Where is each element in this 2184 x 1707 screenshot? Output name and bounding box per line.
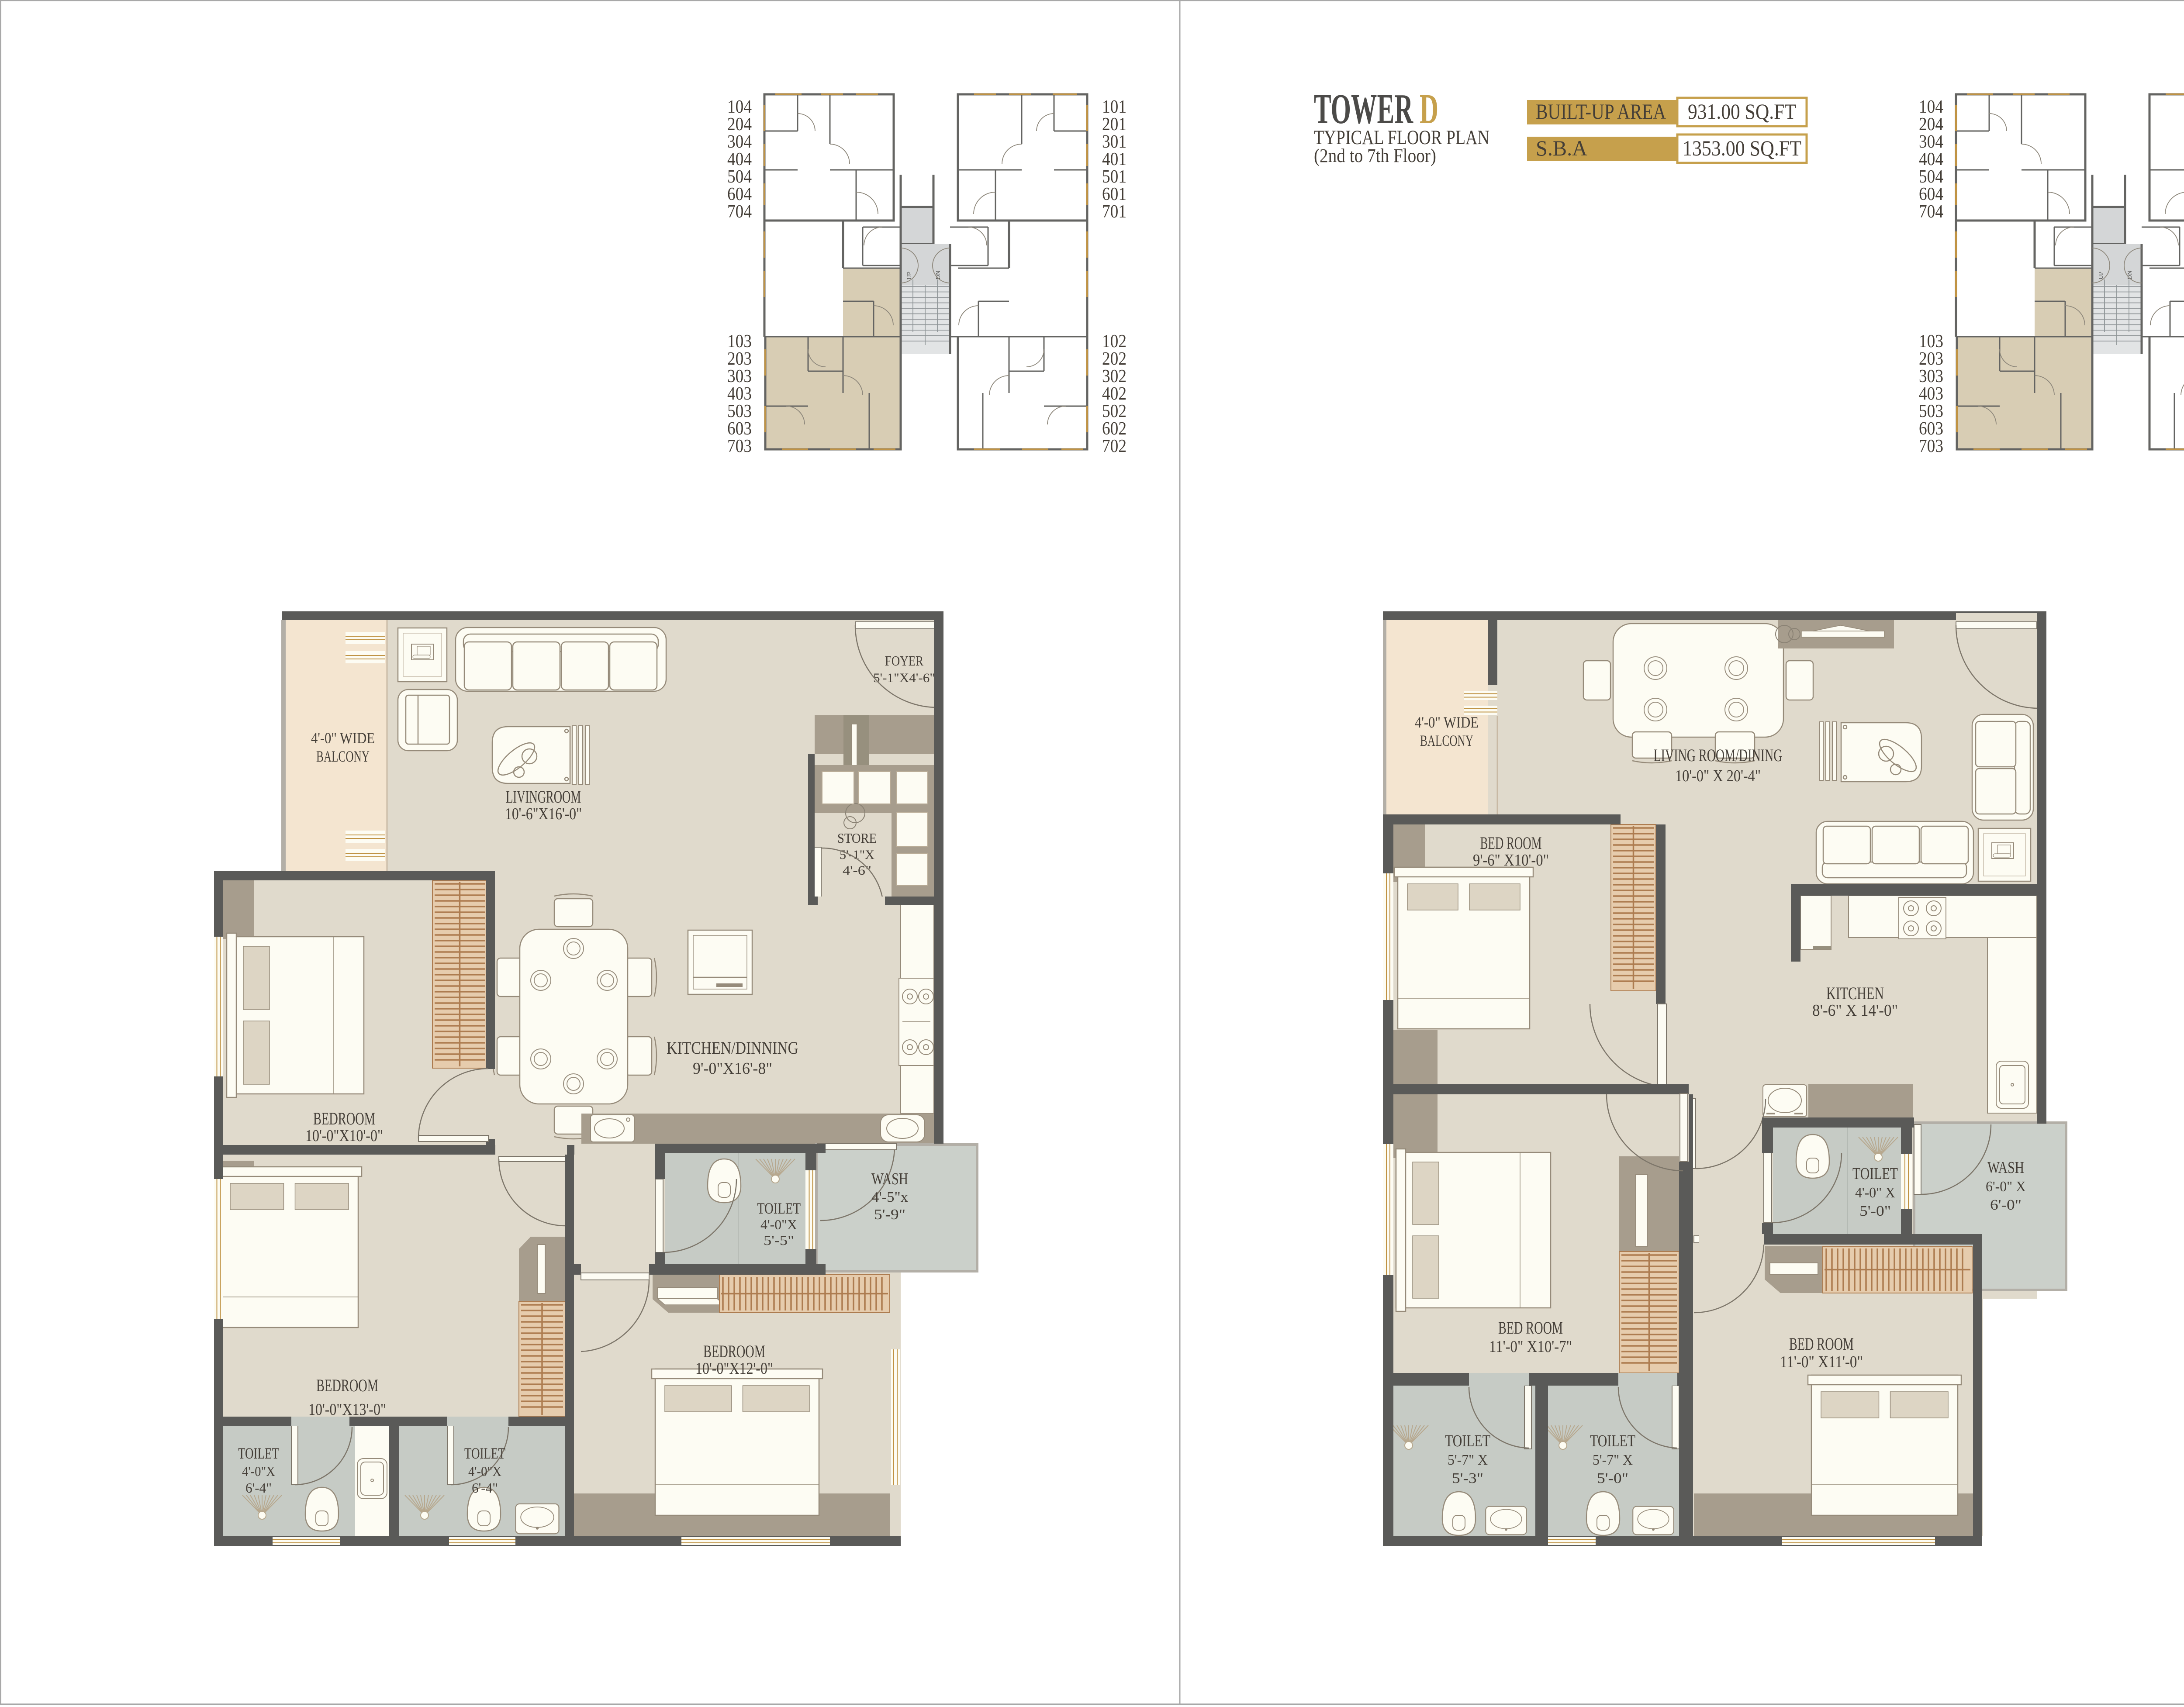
svg-text:WASH: WASH: [1987, 1159, 2024, 1177]
svg-text:WASH: WASH: [871, 1170, 908, 1188]
svg-text:TOILET: TOILET: [238, 1445, 279, 1462]
svg-text:10'-6"X16'-0": 10'-6"X16'-0": [505, 805, 582, 823]
svg-text:8'-6" X 14'-0": 8'-6" X 14'-0": [1812, 1001, 1898, 1020]
svg-text:4'-5"x: 4'-5"x: [871, 1189, 908, 1205]
svg-text:KITCHEN: KITCHEN: [1826, 983, 1884, 1003]
svg-text:BUILT-UP AREA: BUILT-UP AREA: [1536, 99, 1666, 124]
svg-text:KITCHEN/DINNING: KITCHEN/DINNING: [667, 1038, 798, 1058]
svg-text:9'-6" X10'-0": 9'-6" X10'-0": [1473, 851, 1549, 869]
svg-text:5'-9": 5'-9": [874, 1207, 905, 1223]
svg-text:S.B.A: S.B.A: [1536, 136, 1587, 160]
svg-text:BALCONY: BALCONY: [1420, 732, 1473, 749]
svg-text:4'-0" WIDE: 4'-0" WIDE: [1415, 714, 1479, 731]
svg-text:11'-0" X10'-7": 11'-0" X10'-7": [1489, 1338, 1572, 1356]
svg-text:931.00 SQ.FT: 931.00 SQ.FT: [1688, 99, 1796, 124]
svg-text:4'-0"X: 4'-0"X: [242, 1463, 275, 1479]
svg-text:10'-0"X12'-0": 10'-0"X12'-0": [695, 1359, 773, 1378]
svg-text:5'-0": 5'-0": [1597, 1470, 1628, 1486]
svg-text:4'-0"X: 4'-0"X: [468, 1463, 501, 1479]
svg-text:10'-0"X13'-0": 10'-0"X13'-0": [308, 1400, 386, 1419]
svg-text:6'-4": 6'-4": [472, 1480, 498, 1496]
svg-text:BEDROOM: BEDROOM: [703, 1341, 765, 1361]
svg-text:4'-0"X: 4'-0"X: [760, 1217, 797, 1232]
svg-text:TOILET: TOILET: [1852, 1165, 1898, 1183]
svg-text:5'-1"X: 5'-1"X: [840, 848, 874, 862]
svg-text:6'-0" X: 6'-0" X: [1986, 1179, 2026, 1195]
svg-text:TOWER D: TOWER D: [1314, 86, 1438, 132]
svg-text:1353.00 SQ.FT: 1353.00 SQ.FT: [1683, 136, 1801, 160]
svg-text:BALCONY: BALCONY: [316, 748, 370, 765]
svg-text:TOILET: TOILET: [757, 1200, 801, 1217]
svg-text:6'-4": 6'-4": [245, 1480, 272, 1496]
svg-text:BED ROOM: BED ROOM: [1789, 1334, 1854, 1354]
svg-text:6'-0": 6'-0": [1990, 1197, 2022, 1213]
svg-text:TOILET: TOILET: [464, 1445, 505, 1462]
svg-text:5'-1"X4'-6": 5'-1"X4'-6": [873, 671, 935, 685]
svg-text:BED ROOM: BED ROOM: [1480, 833, 1542, 853]
svg-text:LIVING ROOM/DINING: LIVING ROOM/DINING: [1654, 745, 1783, 765]
svg-text:STORE: STORE: [837, 830, 877, 846]
svg-text:BEDROOM: BEDROOM: [313, 1109, 375, 1128]
svg-text:BED ROOM: BED ROOM: [1498, 1318, 1563, 1338]
svg-text:5'-7" X: 5'-7" X: [1448, 1452, 1488, 1468]
svg-text:LIVINGROOM: LIVINGROOM: [506, 787, 581, 807]
svg-text:5'-3": 5'-3": [1452, 1470, 1483, 1486]
svg-text:4'-0" WIDE: 4'-0" WIDE: [311, 729, 375, 747]
svg-text:4'-0" X: 4'-0" X: [1855, 1185, 1895, 1201]
svg-text:TOILET: TOILET: [1445, 1432, 1490, 1450]
svg-text:10'-0" X 20'-4": 10'-0" X 20'-4": [1675, 767, 1761, 785]
svg-text:9'-0"X16'-8": 9'-0"X16'-8": [693, 1059, 772, 1078]
svg-text:4'-6": 4'-6": [843, 863, 871, 878]
svg-text:FOYER: FOYER: [885, 653, 924, 669]
svg-text:(2nd to 7th Floor): (2nd to 7th Floor): [1314, 145, 1436, 166]
svg-text:BEDROOM: BEDROOM: [316, 1376, 378, 1395]
svg-text:5'-0": 5'-0": [1859, 1203, 1891, 1219]
svg-text:TOILET: TOILET: [1590, 1432, 1635, 1450]
svg-text:10'-0"X10'-0": 10'-0"X10'-0": [305, 1127, 383, 1145]
svg-text:5'-5": 5'-5": [764, 1232, 794, 1248]
svg-text:5'-7" X: 5'-7" X: [1593, 1452, 1633, 1468]
svg-text:11'-0" X11'-0": 11'-0" X11'-0": [1780, 1353, 1863, 1371]
